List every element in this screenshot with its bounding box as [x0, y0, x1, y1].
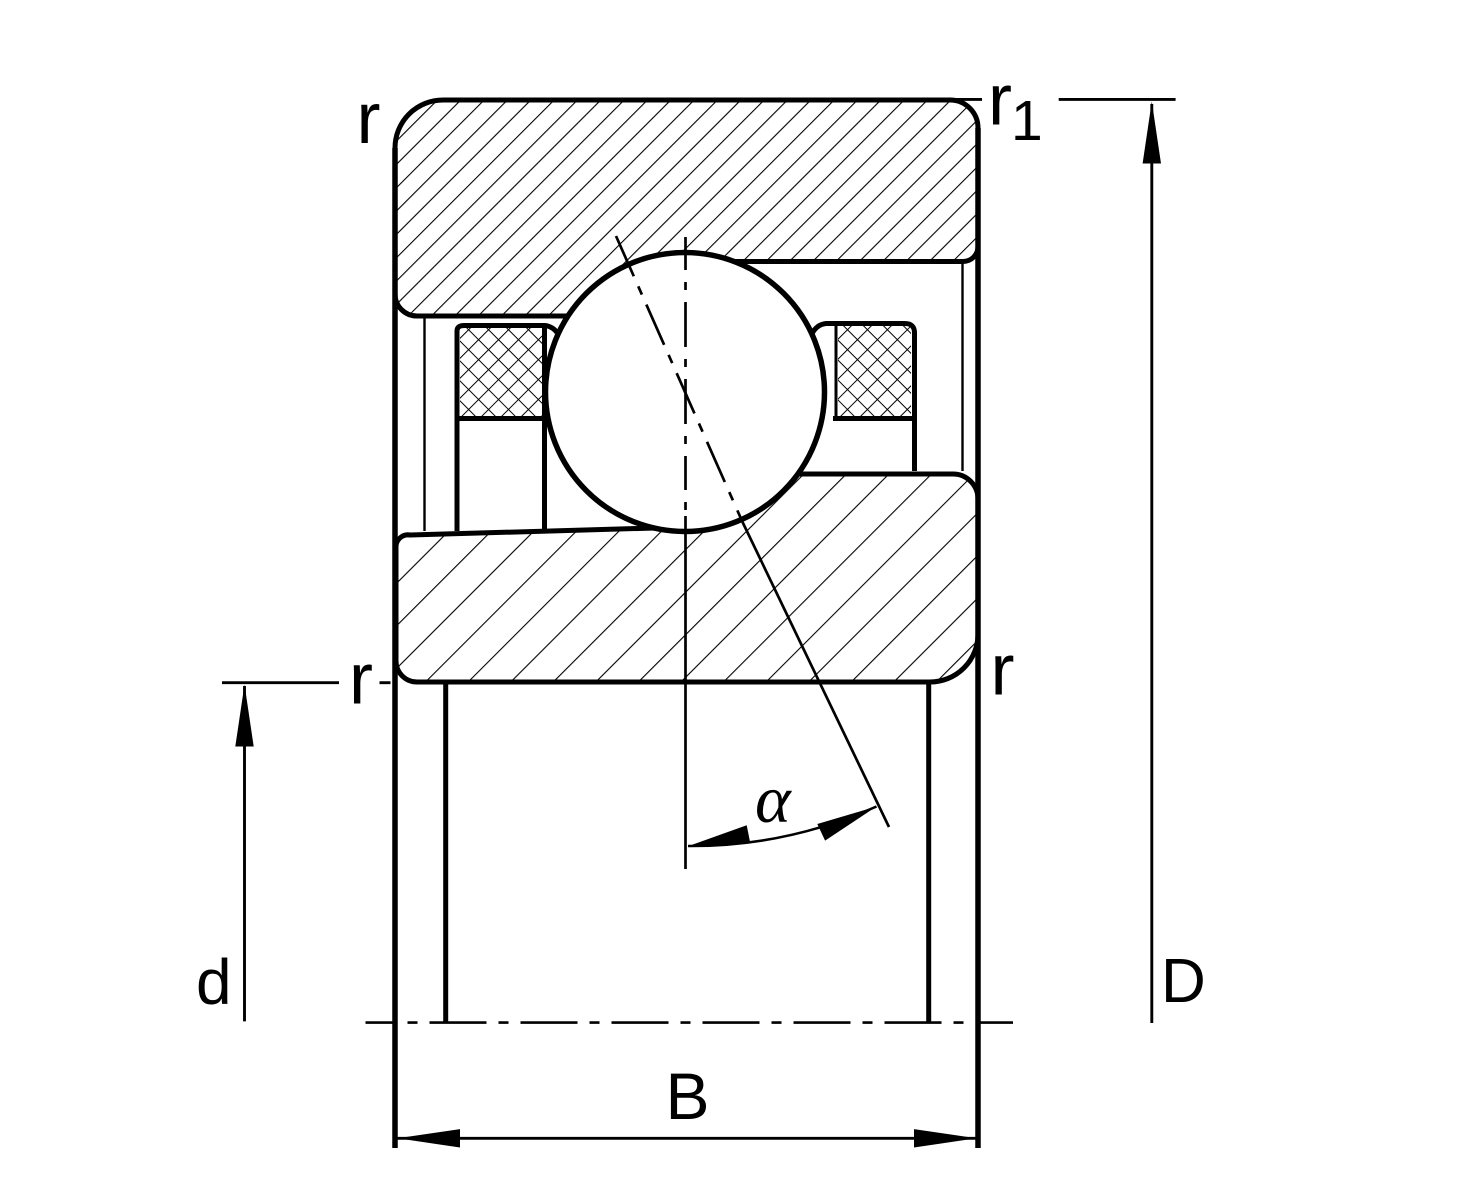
svg-text:r: r: [357, 79, 381, 159]
svg-text:D: D: [1161, 947, 1206, 1016]
svg-text:r: r: [349, 639, 373, 719]
svg-text:1: 1: [1011, 89, 1043, 153]
svg-text:α: α: [755, 761, 792, 837]
svg-text:r: r: [988, 60, 1012, 140]
svg-text:d: d: [196, 946, 232, 1018]
svg-text:r: r: [991, 631, 1015, 711]
svg-text:B: B: [665, 1059, 709, 1133]
